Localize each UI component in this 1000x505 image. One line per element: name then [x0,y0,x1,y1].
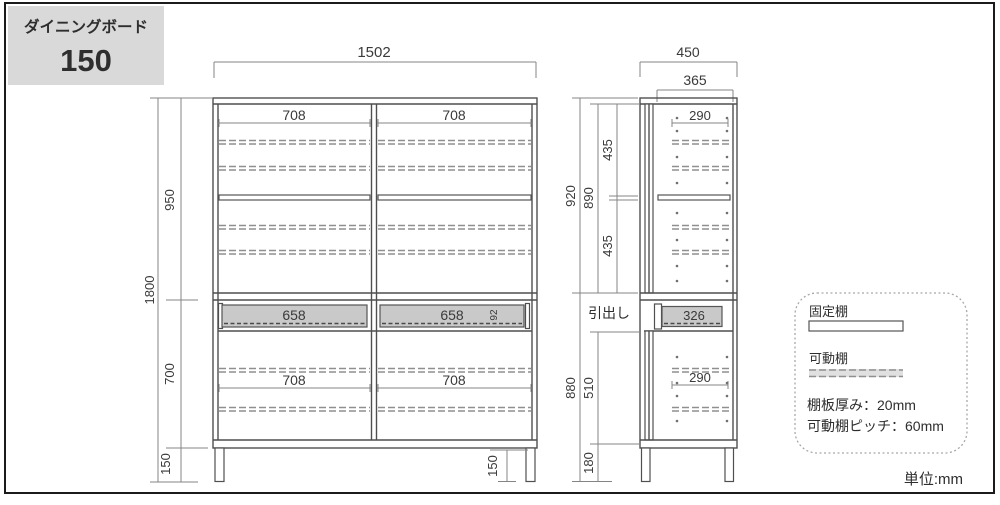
dim-front-compartment-upper-right: 708 [377,107,532,127]
svg-text:450: 450 [676,44,700,60]
front-drawer-left: 658 [219,304,368,329]
legend-note-thickness: 棚板厚み：20mm [807,397,916,413]
drawing-page: ダイニングボード 150 1502 [0,0,1000,500]
dim-front-upper-height: 950 [162,189,177,211]
legend-fixed-shelf-sample [809,321,903,331]
dim-front-heights: 1800 950 700 150 [142,98,213,482]
side-drawer: 326 [655,304,723,329]
dim-front-total-height: 1800 [142,276,157,305]
svg-text:708: 708 [282,372,306,388]
side-leg-front [642,448,651,482]
dim-side-upper-shelf-depth: 290 [672,108,728,127]
product-series-label: ダイニングボード [24,17,148,36]
svg-text:708: 708 [442,372,466,388]
front-drawer-right: 658 92 [380,304,530,329]
dim-front-compartment-lower-left: 708 [218,372,371,392]
dim-side-lower-height: 880 [563,377,578,399]
front-leg-left [215,448,224,482]
front-cabinet-outline [213,98,537,448]
legend-note-pitch: 可動棚ピッチ：60mm [807,418,944,434]
dim-side-upper-height: 920 [563,185,578,207]
svg-text:658: 658 [282,307,306,323]
dim-side-upper-inner-height: 890 [581,187,596,209]
legend-movable-shelf-sample [809,369,903,377]
dim-side-lower-inner-height: 510 [581,377,596,399]
dim-side-upper-space-a: 435 [600,139,615,161]
dim-front-leg-height: 150 [158,453,173,475]
side-fixed-shelf [658,195,730,200]
dim-front-right-leg-height: 150 [485,450,528,482]
legend-fixed-shelf-label: 固定棚 [809,304,848,319]
legend-box: 固定棚 可動棚 棚板厚み：20mm 可動棚ピッチ：60mm [795,293,967,453]
svg-text:365: 365 [683,72,707,88]
dim-side-lower-shelf-depth: 290 [672,370,728,389]
unit-label: 単位:mm [904,471,963,488]
dim-side-drawer-depth: 326 [683,308,705,323]
dim-front-drawer-height: 92 [489,309,500,321]
svg-text:708: 708 [442,107,466,123]
front-movable-shelves-lower [219,369,531,412]
dim-side-upper-space-b: 435 [600,235,615,257]
side-leg-back [725,448,734,482]
dim-front-lower-height: 700 [162,363,177,385]
front-view: 1502 [142,44,537,482]
dim-front-compartment-upper-left: 708 [218,107,371,127]
svg-text:708: 708 [282,107,306,123]
svg-text:658: 658 [440,307,464,323]
front-fixed-shelf-left [219,195,370,200]
svg-text:1502: 1502 [357,44,390,61]
product-size-label: 150 [60,43,112,78]
svg-text:150: 150 [485,455,500,477]
side-pin-holes-lower [676,356,729,423]
dim-front-compartment-lower-right: 708 [377,372,532,392]
side-view: 450 365 290 [563,44,737,482]
legend-movable-shelf-label: 可動棚 [809,351,848,366]
drawing-canvas: ダイニングボード 150 1502 [0,0,1000,500]
svg-text:290: 290 [689,108,711,123]
drawer-callout-label: 引出し [588,305,630,321]
dim-side-leg-height: 180 [581,452,596,474]
dim-front-total-width: 1502 [214,44,536,78]
front-fixed-shelf-right [378,195,531,200]
side-cabinet-outline [640,98,737,448]
title-box: ダイニングボード 150 [8,6,164,85]
dim-side-heights: 920 890 435 435 880 510 180 [563,98,640,482]
front-leg-right [526,448,535,482]
